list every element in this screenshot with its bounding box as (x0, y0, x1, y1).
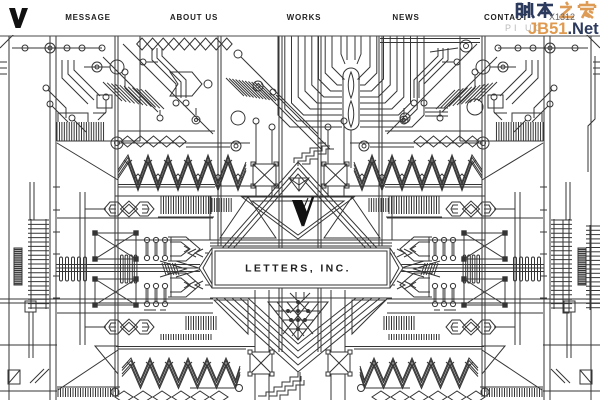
svg-text:MESSAGE: MESSAGE (65, 13, 111, 22)
svg-text:LETTERS, INC.: LETTERS, INC. (245, 263, 351, 275)
svg-text:WORKS: WORKS (287, 13, 322, 22)
svg-text:JB51.Net: JB51.Net (528, 20, 599, 38)
svg-text:NEWS: NEWS (392, 13, 419, 22)
svg-text:ABOUT US: ABOUT US (170, 13, 218, 22)
